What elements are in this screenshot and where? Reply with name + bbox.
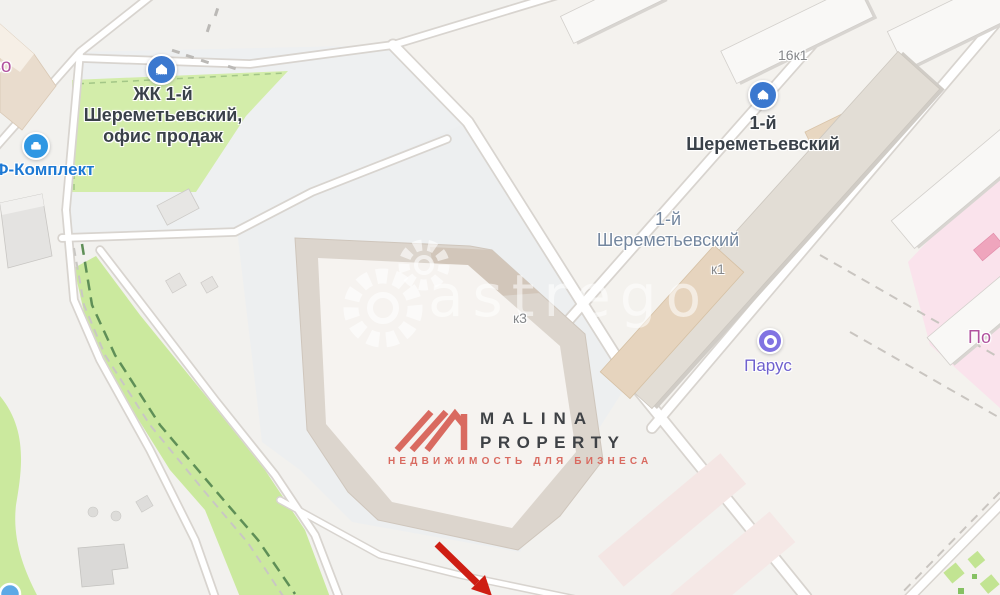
malina-watermark-tagline: НЕДВИЖИМОСТЬ ДЛЯ БИЗНЕСА — [388, 456, 652, 467]
poi-label-line: Шереметьевский, — [60, 105, 266, 126]
poi-label-line: 1-й — [660, 113, 866, 134]
street-label-line: Шереметьевский — [565, 230, 771, 251]
malina-watermark-line1: MALINA — [480, 409, 594, 429]
ring-glyph-icon — [764, 335, 777, 348]
icon-caption: 1мск — [750, 99, 776, 104]
locality-label-right: По — [968, 327, 991, 348]
furniture-store-icon[interactable] — [22, 132, 50, 160]
map-canvas[interactable]: astrego 1мск ЖК 1-й Шереметьевский, офис… — [0, 0, 1000, 595]
ring-icon[interactable] — [757, 328, 783, 354]
locality-label-left: во — [0, 56, 11, 78]
poi-label-zhk-office[interactable]: ЖК 1-й Шереметьевский, офис продаж — [60, 84, 266, 147]
building-label-k1: к1 — [711, 261, 725, 277]
malina-logo-icon — [390, 405, 470, 455]
street-label-line: 1-й — [565, 209, 771, 230]
poi-label-line: офис продаж — [60, 126, 266, 147]
armchair-glyph-icon — [28, 138, 44, 154]
poi-label-f-komplekt[interactable]: Ф-Комплект — [0, 160, 94, 180]
poi-label-line: Шереметьевский — [660, 134, 866, 155]
clipped-poi-icon[interactable] — [0, 584, 20, 595]
building-label-16k1: 16к1 — [778, 47, 807, 63]
malina-watermark-line2: PROPERTY — [480, 433, 626, 453]
street-label: 1-й Шереметьевский — [565, 209, 771, 251]
building-label-k3: к3 — [513, 310, 527, 326]
poi-label-parus[interactable]: Парус — [740, 356, 796, 376]
residential-complex-icon[interactable]: 1мск — [146, 54, 177, 85]
poi-label-zhk-main[interactable]: 1-й Шереметьевский — [660, 113, 866, 155]
poi-label-line: ЖК 1-й — [60, 84, 266, 105]
astrego-watermark: astrego — [428, 262, 710, 330]
icon-caption: 1мск — [148, 74, 175, 79]
residential-complex-icon[interactable]: 1мск — [748, 80, 778, 110]
